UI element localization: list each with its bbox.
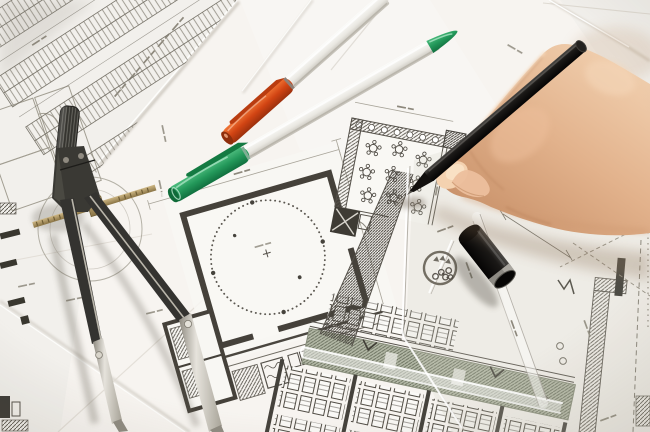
photo-architect-desk [0,0,650,432]
scene-canvas [0,0,650,432]
vignette [0,0,650,432]
